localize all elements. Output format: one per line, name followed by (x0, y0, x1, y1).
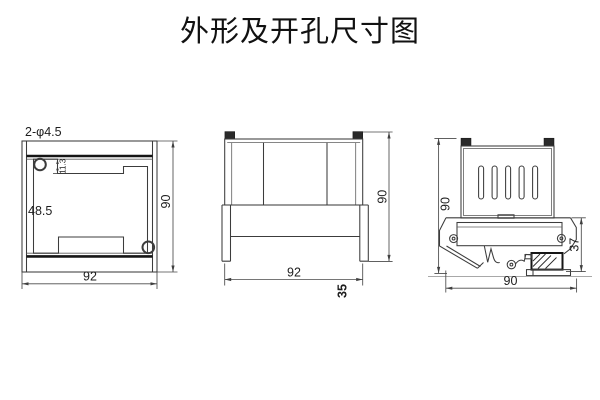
front-width-label: 92 (83, 270, 97, 284)
rail-clip-left (461, 138, 471, 146)
flange-left-wing (440, 218, 484, 268)
screw-left (450, 235, 458, 243)
screw-left-center (452, 237, 455, 240)
front-view: 11.3 48.5 2-φ4.5 90 92 (22, 125, 178, 289)
rail-body (461, 146, 554, 218)
vent-slots (479, 166, 538, 199)
din-rail-view: 90 37 90 (428, 138, 592, 292)
side-height-label: 90 (375, 190, 389, 204)
din-spring-hole (507, 260, 515, 268)
rail-plate (457, 223, 562, 246)
mounting-hole-top-left (34, 159, 46, 171)
drawing-canvas: 11.3 48.5 2-φ4.5 90 92 9 (0, 0, 600, 400)
rail-clip-right (544, 138, 554, 146)
rail-lower-depth-label: 37 (568, 238, 582, 252)
holes-callout-label: 2-φ4.5 (25, 125, 62, 139)
rail-width-label: 90 (504, 274, 518, 288)
side-clip-right (353, 132, 363, 139)
screw-right-center (560, 237, 563, 240)
side-flange (222, 205, 368, 261)
side-body (225, 139, 363, 205)
side-view: 92 35 90 (222, 132, 393, 298)
pocket-width-label: 48.5 (28, 204, 52, 218)
rail-body-inner (464, 149, 552, 216)
rail-height-label: 90 (439, 197, 453, 211)
side-depth-label: 35 (336, 284, 350, 298)
drawing-page: 外形及开孔尺寸图 11.3 48.5 2-φ4.5 90 (0, 0, 600, 400)
vent-slot (479, 166, 484, 199)
din-spring-hole-center (510, 263, 513, 266)
vent-slot (506, 166, 511, 199)
screw-right (557, 234, 565, 242)
vent-slot (533, 166, 538, 199)
side-body-dividers (264, 143, 328, 205)
front-height-label: 90 (159, 195, 173, 209)
vent-slot (519, 166, 524, 199)
side-width-label: 92 (287, 265, 301, 279)
side-clip-left (225, 132, 235, 139)
vent-slot (492, 166, 497, 199)
side-body-inner-lines (227, 143, 360, 205)
din-spring (484, 246, 499, 263)
notch-depth-label: 11.3 (58, 158, 67, 174)
din-latch-hatching (533, 254, 557, 269)
